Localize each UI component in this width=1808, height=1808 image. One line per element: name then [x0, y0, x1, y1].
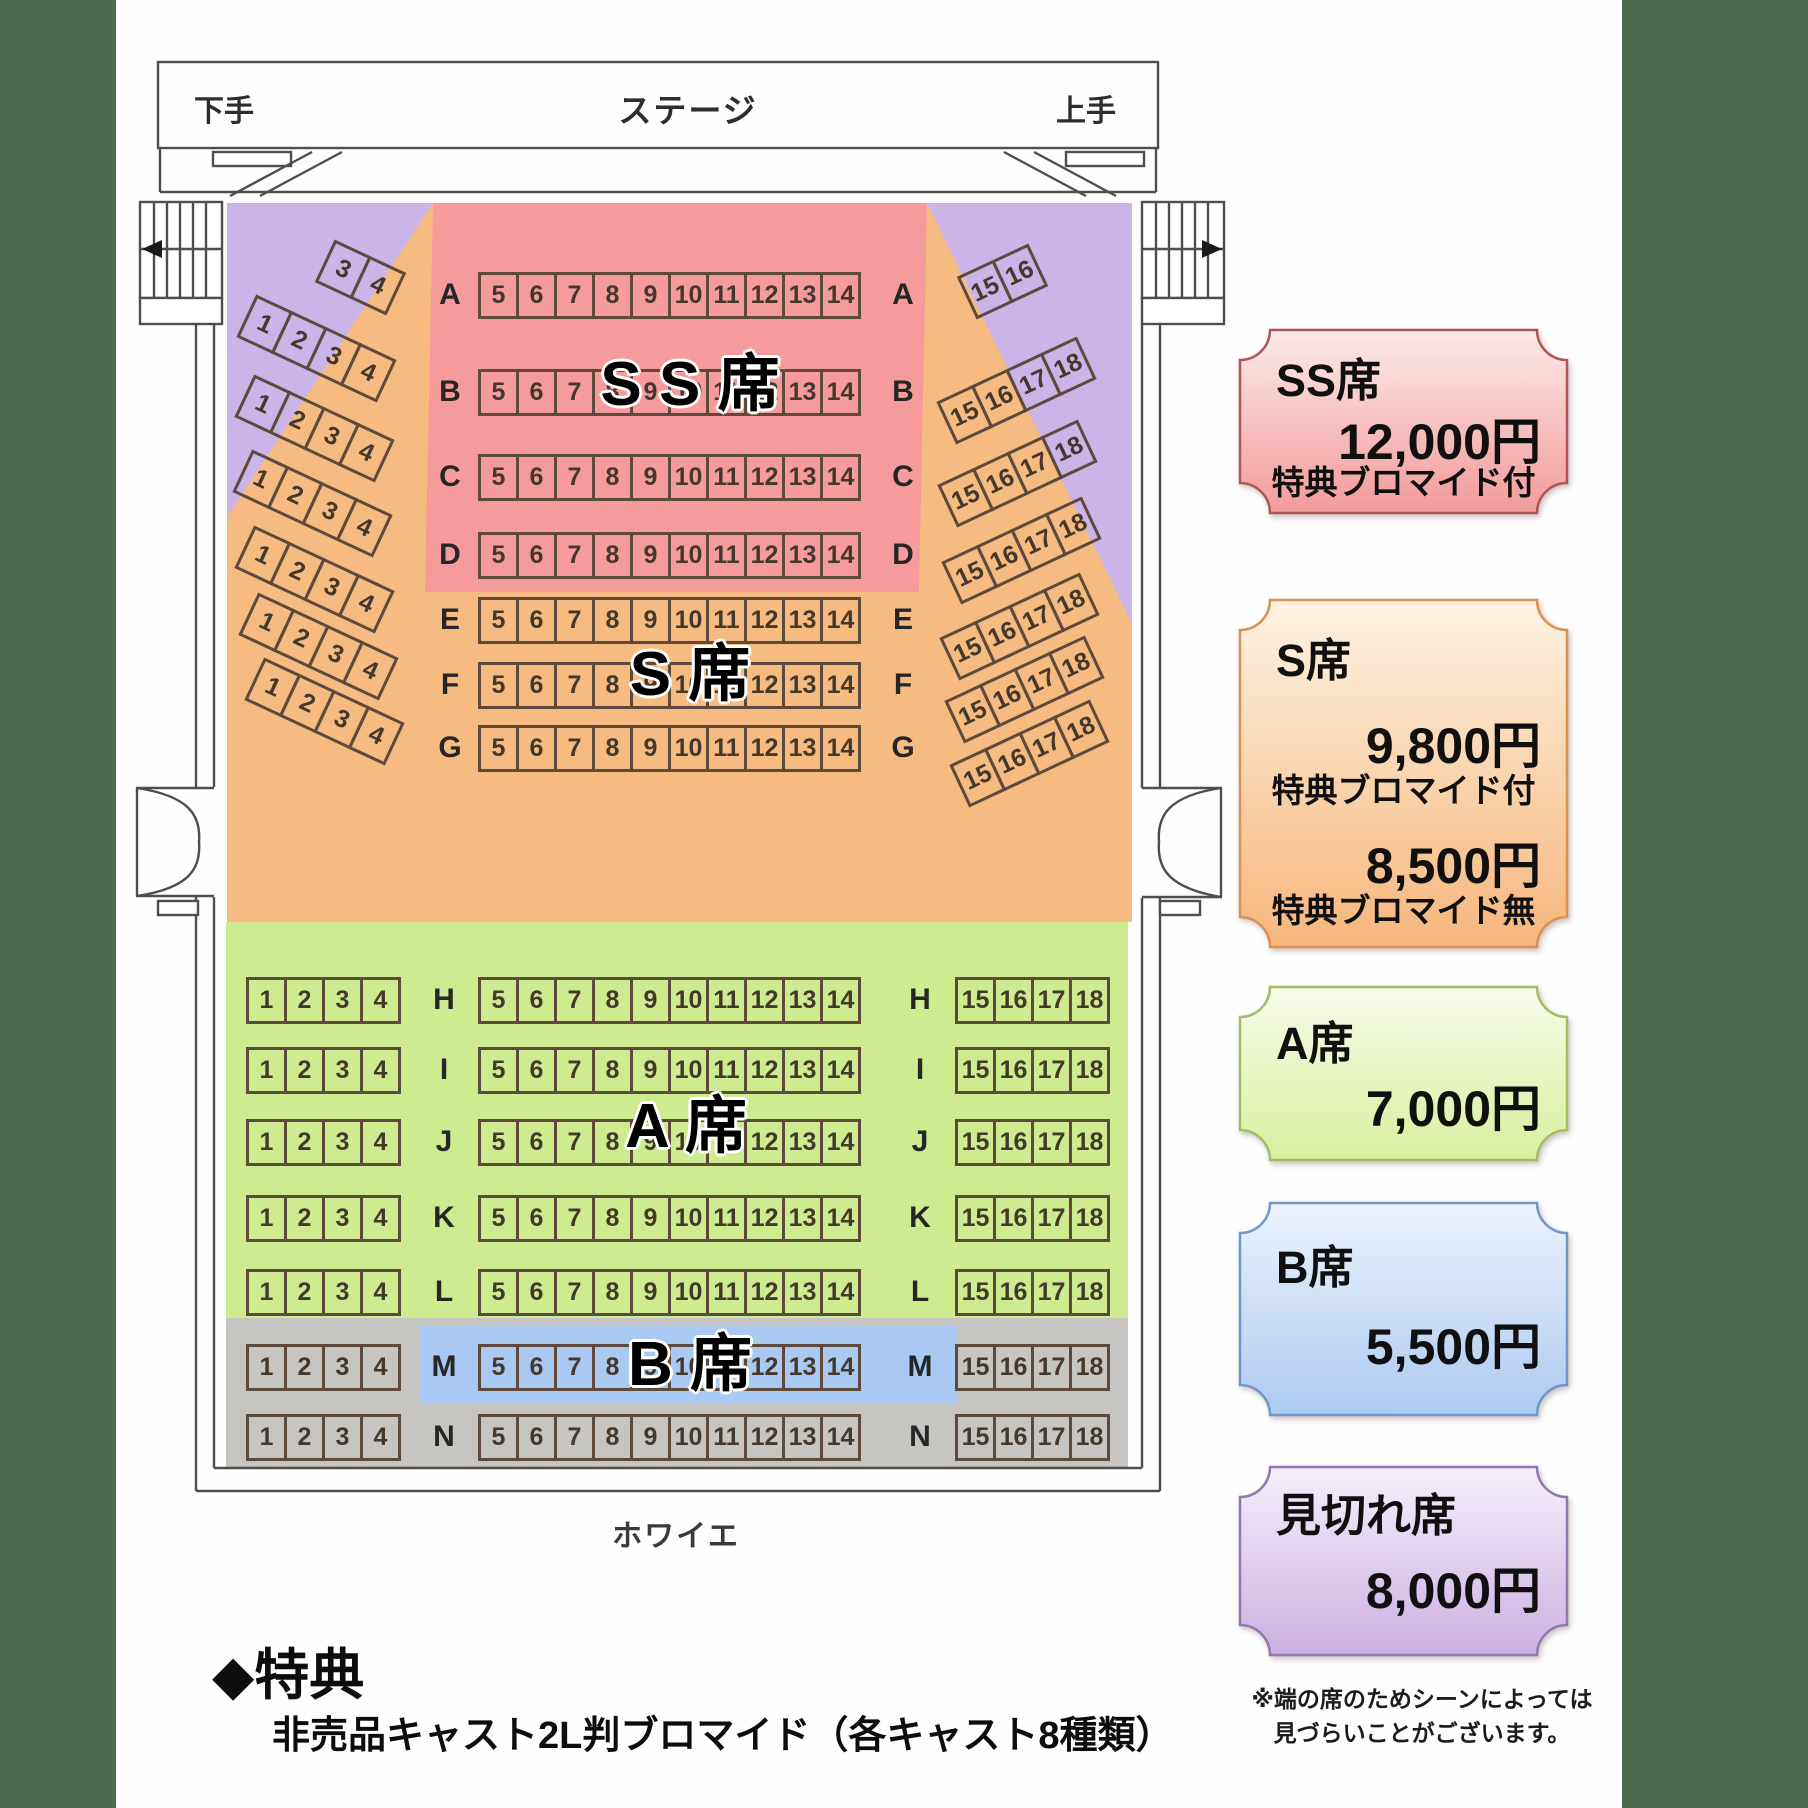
seat-block-A: 34 — [315, 239, 406, 315]
seat-J-2: 2 — [284, 1119, 325, 1166]
seat-N-18: 18 — [1069, 1414, 1110, 1461]
legend-ticket-s: S席9,800円特典ブロマイド付8,500円特典ブロマイド無 — [1240, 600, 1567, 947]
seat-block-A: 1516 — [957, 243, 1048, 319]
seat-I-5: 5 — [478, 1047, 519, 1094]
zone-label-s: S 席 — [630, 623, 751, 713]
seat-C-11: 11 — [706, 454, 747, 501]
row-label-H-right: H — [909, 983, 931, 1017]
seat-block-J: 1234 — [246, 1119, 401, 1166]
seat-I-13: 13 — [782, 1047, 823, 1094]
seat-M-16: 16 — [993, 1344, 1034, 1391]
legend-ss-note: 特典ブロマイド付 — [1240, 456, 1567, 504]
seat-K-13: 13 — [782, 1195, 823, 1242]
seat-M-6: 6 — [516, 1344, 557, 1391]
seat-G-12: 12 — [744, 725, 785, 772]
seat-G-9: 9 — [630, 725, 671, 772]
seat-F-13: 13 — [782, 662, 823, 709]
seat-L-5: 5 — [478, 1269, 519, 1316]
seat-K-16: 16 — [993, 1195, 1034, 1242]
seat-J-7: 7 — [554, 1119, 595, 1166]
seat-N-16: 16 — [993, 1414, 1034, 1461]
row-label-J-left: J — [436, 1125, 453, 1159]
seat-H-8: 8 — [592, 977, 633, 1024]
seat-K-8: 8 — [592, 1195, 633, 1242]
seat-L-18: 18 — [1069, 1269, 1110, 1316]
seat-F-6: 6 — [516, 662, 557, 709]
seat-J-1: 1 — [246, 1119, 287, 1166]
seat-G-13: 13 — [782, 725, 823, 772]
legend-ss-name: SS席 — [1276, 344, 1381, 409]
seat-J-3: 3 — [322, 1119, 363, 1166]
legend-ticket-a: A席7,000円 — [1240, 987, 1567, 1160]
row-label-D-left: D — [439, 538, 461, 572]
seat-N-6: 6 — [516, 1414, 557, 1461]
seat-J-6: 6 — [516, 1119, 557, 1166]
seat-C-10: 10 — [668, 454, 709, 501]
row-label-M-right: M — [908, 1350, 933, 1384]
row-label-N-right: N — [909, 1420, 931, 1454]
seat-N-2: 2 — [284, 1414, 325, 1461]
seat-M-17: 17 — [1031, 1344, 1072, 1391]
seat-F-7: 7 — [554, 662, 595, 709]
seat-M-14: 14 — [820, 1344, 861, 1391]
legend-b-name: B席 — [1276, 1231, 1354, 1296]
seat-A-13: 13 — [782, 272, 823, 319]
row-label-G-right: G — [891, 731, 914, 765]
seat-D-12: 12 — [744, 532, 785, 579]
seat-block-N: 1234 — [246, 1414, 401, 1461]
seat-L-15: 15 — [955, 1269, 996, 1316]
seat-I-6: 6 — [516, 1047, 557, 1094]
seat-C-9: 9 — [630, 454, 671, 501]
seat-D-7: 7 — [554, 532, 595, 579]
row-label-M-left: M — [432, 1350, 457, 1384]
row-label-B-left: B — [439, 375, 461, 409]
seat-block-K: 567891011121314 — [478, 1195, 861, 1242]
seat-J-12: 12 — [744, 1119, 785, 1166]
row-label-K-right: K — [909, 1201, 931, 1235]
seat-H-9: 9 — [630, 977, 671, 1024]
seat-L-2: 2 — [284, 1269, 325, 1316]
benefits-heading: ◆特典 — [212, 1630, 364, 1710]
seat-J-17: 17 — [1031, 1119, 1072, 1166]
seat-block-H: 15161718 — [955, 977, 1110, 1024]
seat-K-11: 11 — [706, 1195, 747, 1242]
seat-M-1: 1 — [246, 1344, 287, 1391]
seat-J-4: 4 — [360, 1119, 401, 1166]
legend-footnote-line1: ※端の席のためシーンによっては — [1238, 1682, 1606, 1716]
seat-block-I: 1234 — [246, 1047, 401, 1094]
seat-block-M: 15161718 — [955, 1344, 1110, 1391]
legend-m-price: 8,000円 — [1366, 1551, 1541, 1623]
seat-M-7: 7 — [554, 1344, 595, 1391]
seat-G-11: 11 — [706, 725, 747, 772]
seat-A-9: 9 — [630, 272, 671, 319]
seat-A-12: 12 — [744, 272, 785, 319]
seat-A-10: 10 — [668, 272, 709, 319]
seat-L-13: 13 — [782, 1269, 823, 1316]
seat-N-12: 12 — [744, 1414, 785, 1461]
seat-C-8: 8 — [592, 454, 633, 501]
seat-H-5: 5 — [478, 977, 519, 1024]
seat-L-16: 16 — [993, 1269, 1034, 1316]
seat-E-6: 6 — [516, 597, 557, 644]
seat-L-17: 17 — [1031, 1269, 1072, 1316]
seat-D-5: 5 — [478, 532, 519, 579]
seat-E-14: 14 — [820, 597, 861, 644]
seat-block-K: 15161718 — [955, 1195, 1110, 1242]
seat-block-J: 15161718 — [955, 1119, 1110, 1166]
seat-N-5: 5 — [478, 1414, 519, 1461]
seat-G-14: 14 — [820, 725, 861, 772]
row-label-B-right: B — [892, 375, 914, 409]
seat-L-1: 1 — [246, 1269, 287, 1316]
row-label-A-left: A — [439, 278, 461, 312]
seat-I-3: 3 — [322, 1047, 363, 1094]
seat-B-13: 13 — [782, 369, 823, 416]
row-label-C-right: C — [892, 460, 914, 494]
legend-ticket-b: B席5,500円 — [1240, 1203, 1567, 1415]
seat-A-11: 11 — [706, 272, 747, 319]
seat-block-H: 567891011121314 — [478, 977, 861, 1024]
seat-I-7: 7 — [554, 1047, 595, 1094]
seat-B-7: 7 — [554, 369, 595, 416]
legend-ticket-m: 見切れ席8,000円 — [1240, 1467, 1567, 1655]
legend-b-price: 5,500円 — [1366, 1307, 1541, 1379]
seat-L-4: 4 — [360, 1269, 401, 1316]
seat-K-18: 18 — [1069, 1195, 1110, 1242]
seat-block-M: 1234 — [246, 1344, 401, 1391]
seat-G-5: 5 — [478, 725, 519, 772]
legend-s-name: S席 — [1276, 624, 1351, 689]
seat-block-H: 1234 — [246, 977, 401, 1024]
seat-H-16: 16 — [993, 977, 1034, 1024]
seat-E-5: 5 — [478, 597, 519, 644]
seat-H-6: 6 — [516, 977, 557, 1024]
seat-K-17: 17 — [1031, 1195, 1072, 1242]
seat-block-G: 567891011121314 — [478, 725, 861, 772]
seat-A-8: 8 — [592, 272, 633, 319]
legend-m-name: 見切れ席 — [1276, 1479, 1456, 1544]
seat-H-2: 2 — [284, 977, 325, 1024]
seat-A-6: 6 — [516, 272, 557, 319]
seat-K-15: 15 — [955, 1195, 996, 1242]
seat-B-6: 6 — [516, 369, 557, 416]
seat-H-18: 18 — [1069, 977, 1110, 1024]
row-label-D-right: D — [892, 538, 914, 572]
row-label-H-left: H — [433, 983, 455, 1017]
seat-K-1: 1 — [246, 1195, 287, 1242]
seat-M-18: 18 — [1069, 1344, 1110, 1391]
seat-C-14: 14 — [820, 454, 861, 501]
seat-L-14: 14 — [820, 1269, 861, 1316]
seat-J-18: 18 — [1069, 1119, 1110, 1166]
seat-C-7: 7 — [554, 454, 595, 501]
seat-L-9: 9 — [630, 1269, 671, 1316]
seat-C-5: 5 — [478, 454, 519, 501]
seat-block-N: 15161718 — [955, 1414, 1110, 1461]
seat-N-17: 17 — [1031, 1414, 1072, 1461]
seat-E-13: 13 — [782, 597, 823, 644]
seat-C-6: 6 — [516, 454, 557, 501]
seat-G-6: 6 — [516, 725, 557, 772]
seat-M-2: 2 — [284, 1344, 325, 1391]
seat-block-K: 1234 — [246, 1195, 401, 1242]
seat-I-16: 16 — [993, 1047, 1034, 1094]
seat-K-2: 2 — [284, 1195, 325, 1242]
legend-s-note2: 特典ブロマイド無 — [1240, 884, 1567, 932]
row-label-I-left: I — [440, 1053, 448, 1087]
seat-I-12: 12 — [744, 1047, 785, 1094]
seat-G-8: 8 — [592, 725, 633, 772]
row-label-E-left: E — [440, 603, 460, 637]
seat-L-3: 3 — [322, 1269, 363, 1316]
seat-A-7: 7 — [554, 272, 595, 319]
seat-D-14: 14 — [820, 532, 861, 579]
row-label-K-left: K — [433, 1201, 455, 1235]
row-label-I-right: I — [916, 1053, 924, 1087]
seat-H-12: 12 — [744, 977, 785, 1024]
seat-K-12: 12 — [744, 1195, 785, 1242]
seat-N-3: 3 — [322, 1414, 363, 1461]
seat-J-16: 16 — [993, 1119, 1034, 1166]
seat-N-4: 4 — [360, 1414, 401, 1461]
seat-G-7: 7 — [554, 725, 595, 772]
seat-M-3: 3 — [322, 1344, 363, 1391]
row-label-L-left: L — [435, 1275, 453, 1309]
seat-D-13: 13 — [782, 532, 823, 579]
seat-D-11: 11 — [706, 532, 747, 579]
seat-N-11: 11 — [706, 1414, 747, 1461]
seat-M-8: 8 — [592, 1344, 633, 1391]
seat-D-10: 10 — [668, 532, 709, 579]
seat-E-7: 7 — [554, 597, 595, 644]
seat-H-1: 1 — [246, 977, 287, 1024]
seat-I-18: 18 — [1069, 1047, 1110, 1094]
seat-L-11: 11 — [706, 1269, 747, 1316]
seat-B-14: 14 — [820, 369, 861, 416]
row-label-N-left: N — [433, 1420, 455, 1454]
seat-M-15: 15 — [955, 1344, 996, 1391]
row-label-F-right: F — [894, 668, 912, 702]
zone-label-b: B 席 — [628, 1313, 752, 1403]
seat-L-6: 6 — [516, 1269, 557, 1316]
seat-K-10: 10 — [668, 1195, 709, 1242]
seat-F-14: 14 — [820, 662, 861, 709]
seat-N-7: 7 — [554, 1414, 595, 1461]
seat-N-15: 15 — [955, 1414, 996, 1461]
seat-H-7: 7 — [554, 977, 595, 1024]
legend-footnote: ※端の席のためシーンによっては 見づらいことがございます。 — [1238, 1682, 1606, 1750]
seat-I-17: 17 — [1031, 1047, 1072, 1094]
row-label-C-left: C — [439, 460, 461, 494]
seat-block-N: 567891011121314 — [478, 1414, 861, 1461]
seating-chart-canvas: 下手 ステージ 上手 ホワイエ 345678910111213141516AA1… — [0, 0, 1808, 1808]
seat-block-A: 567891011121314 — [478, 272, 861, 319]
seat-L-7: 7 — [554, 1269, 595, 1316]
seat-K-3: 3 — [322, 1195, 363, 1242]
seat-A-14: 14 — [820, 272, 861, 319]
seat-J-14: 14 — [820, 1119, 861, 1166]
seat-K-5: 5 — [478, 1195, 519, 1242]
seat-block-L: 1234 — [246, 1269, 401, 1316]
seat-M-5: 5 — [478, 1344, 519, 1391]
seat-H-13: 13 — [782, 977, 823, 1024]
seat-D-9: 9 — [630, 532, 671, 579]
seat-B-5: 5 — [478, 369, 519, 416]
seat-block-L: 15161718 — [955, 1269, 1110, 1316]
seat-H-15: 15 — [955, 977, 996, 1024]
seat-block-L: 567891011121314 — [478, 1269, 861, 1316]
seat-C-12: 12 — [744, 454, 785, 501]
legend-footnote-line2: 見づらいことがございます。 — [1238, 1716, 1606, 1750]
seat-H-3: 3 — [322, 977, 363, 1024]
seat-K-14: 14 — [820, 1195, 861, 1242]
seat-L-10: 10 — [668, 1269, 709, 1316]
seat-D-6: 6 — [516, 532, 557, 579]
seat-I-15: 15 — [955, 1047, 996, 1094]
seat-D-8: 8 — [592, 532, 633, 579]
seat-M-4: 4 — [360, 1344, 401, 1391]
row-label-J-right: J — [912, 1125, 929, 1159]
row-label-L-right: L — [911, 1275, 929, 1309]
seat-N-1: 1 — [246, 1414, 287, 1461]
seat-H-10: 10 — [668, 977, 709, 1024]
row-label-F-left: F — [441, 668, 459, 702]
seat-F-8: 8 — [592, 662, 633, 709]
zone-label-ss: S S 席 — [600, 333, 779, 423]
legend-s-note: 特典ブロマイド付 — [1240, 764, 1567, 812]
seat-J-5: 5 — [478, 1119, 519, 1166]
seat-I-4: 4 — [360, 1047, 401, 1094]
legend-ticket-ss: SS席12,000円特典ブロマイド付 — [1240, 330, 1567, 513]
seat-H-4: 4 — [360, 977, 401, 1024]
seat-block-C: 567891011121314 — [478, 454, 861, 501]
seat-J-13: 13 — [782, 1119, 823, 1166]
benefits-body: 非売品キャスト2L判ブロマイド（各キャスト8種類） — [272, 1704, 1173, 1759]
seat-L-8: 8 — [592, 1269, 633, 1316]
seat-E-8: 8 — [592, 597, 633, 644]
seat-H-11: 11 — [706, 977, 747, 1024]
seat-A-5: 5 — [478, 272, 519, 319]
seat-K-9: 9 — [630, 1195, 671, 1242]
seat-N-9: 9 — [630, 1414, 671, 1461]
seat-K-7: 7 — [554, 1195, 595, 1242]
seat-block-D: 567891011121314 — [478, 532, 861, 579]
row-label-A-right: A — [892, 278, 914, 312]
seat-N-10: 10 — [668, 1414, 709, 1461]
seat-H-17: 17 — [1031, 977, 1072, 1024]
seat-G-10: 10 — [668, 725, 709, 772]
seat-N-8: 8 — [592, 1414, 633, 1461]
legend-a-name: A席 — [1276, 1007, 1354, 1072]
seat-K-4: 4 — [360, 1195, 401, 1242]
row-label-E-right: E — [893, 603, 913, 637]
seat-L-12: 12 — [744, 1269, 785, 1316]
seat-H-14: 14 — [820, 977, 861, 1024]
seat-C-13: 13 — [782, 454, 823, 501]
seat-F-5: 5 — [478, 662, 519, 709]
seat-block-I: 15161718 — [955, 1047, 1110, 1094]
seat-I-14: 14 — [820, 1047, 861, 1094]
legend-a-price: 7,000円 — [1366, 1069, 1541, 1141]
seat-M-13: 13 — [782, 1344, 823, 1391]
zone-label-a: A 席 — [625, 1075, 747, 1165]
seat-N-13: 13 — [782, 1414, 823, 1461]
seat-N-14: 14 — [820, 1414, 861, 1461]
seat-I-1: 1 — [246, 1047, 287, 1094]
seat-K-6: 6 — [516, 1195, 557, 1242]
seat-I-2: 2 — [284, 1047, 325, 1094]
seat-J-15: 15 — [955, 1119, 996, 1166]
row-label-G-left: G — [438, 731, 461, 765]
